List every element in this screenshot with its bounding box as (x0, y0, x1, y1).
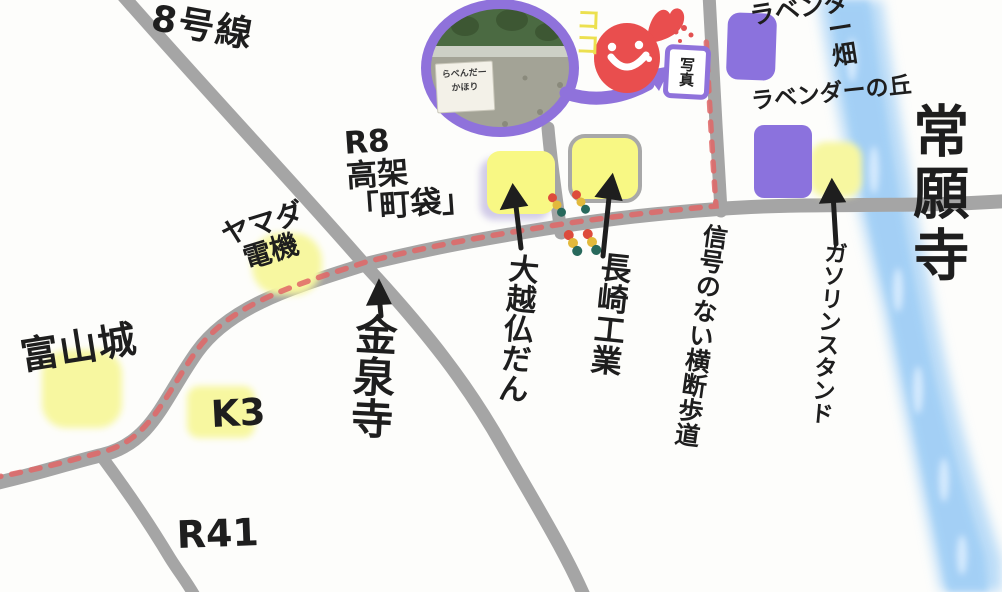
photo-sign: らべんだー かほり (435, 61, 496, 114)
road-r41 (102, 457, 198, 592)
traffic-light-icon (581, 227, 603, 256)
gas-station-arrow (823, 183, 842, 244)
lavender-hill-area (754, 125, 812, 198)
photo-frame-label: 写真 (676, 56, 699, 87)
photo-sign-line2: かほり (437, 80, 494, 97)
k3-highlight (187, 386, 255, 438)
yamada-highlight (252, 233, 322, 295)
map-artwork (0, 0, 1002, 592)
hand-drawn-map: らべんだー かほり 写真 ココ 8号線 R8 高架 「町袋」 ヤマダ 電機 金泉… (0, 0, 1002, 592)
traffic-light-icon (562, 228, 584, 257)
lavender-field-area (726, 12, 777, 81)
photo-frame-sign: 写真 (663, 44, 712, 100)
toyama-castle-highlight (42, 350, 122, 428)
river (818, 0, 1002, 592)
